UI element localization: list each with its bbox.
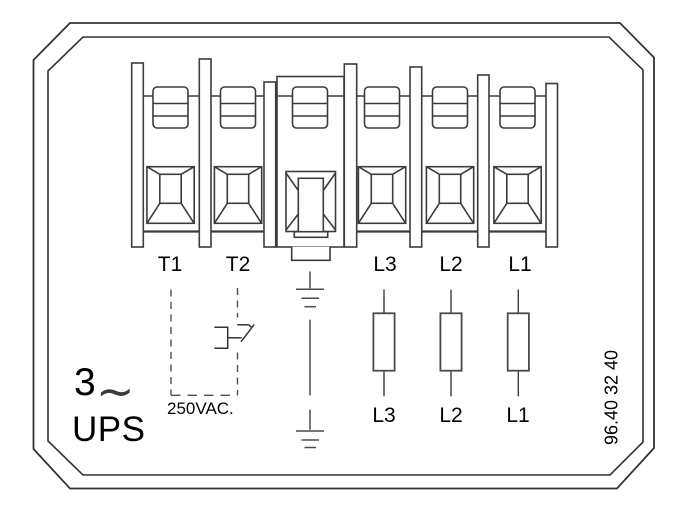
fuse-l2 xyxy=(440,290,461,397)
thermal-switch-circuit xyxy=(171,288,254,395)
terminal-unit-t1 xyxy=(147,87,194,223)
ac-sine-symbol: ∼ xyxy=(96,368,135,414)
label-l1-supply: L1 xyxy=(506,405,529,426)
supply-fuses xyxy=(373,290,529,397)
terminal-unit-l3 xyxy=(358,87,405,223)
label-t1: T1 xyxy=(158,254,183,275)
contact-rating-label: 250VAC. xyxy=(167,400,234,417)
phase-count-label: 3 xyxy=(74,363,96,402)
terminal-unit-t2 xyxy=(214,87,261,223)
label-l3-terminal: L3 xyxy=(373,254,396,275)
label-t2: T2 xyxy=(226,254,251,275)
ground-tab xyxy=(292,247,330,260)
ups-label: UPS xyxy=(72,412,145,447)
terminal-strip xyxy=(132,59,558,260)
label-l3-supply: L3 xyxy=(372,405,395,426)
label-l2-supply: L2 xyxy=(439,405,462,426)
earth-symbol-lower xyxy=(296,410,324,448)
label-l2-terminal: L2 xyxy=(439,254,462,275)
thermal-contact-symbol xyxy=(214,325,254,349)
fuse-l1 xyxy=(508,290,529,397)
fuse-l3 xyxy=(373,290,394,397)
terminal-unit-l2 xyxy=(426,87,473,223)
wiring-diagram: T1 T2 L3 L2 L1 L3 L2 L1 250VAC. 3 ∼ UPS … xyxy=(0,0,700,512)
ground-conductor xyxy=(296,272,324,448)
earth-symbol-upper xyxy=(296,272,324,307)
terminal-unit-l1 xyxy=(494,87,541,223)
part-number: 96.40 32 40 xyxy=(603,343,624,453)
label-l1-terminal: L1 xyxy=(508,254,531,275)
